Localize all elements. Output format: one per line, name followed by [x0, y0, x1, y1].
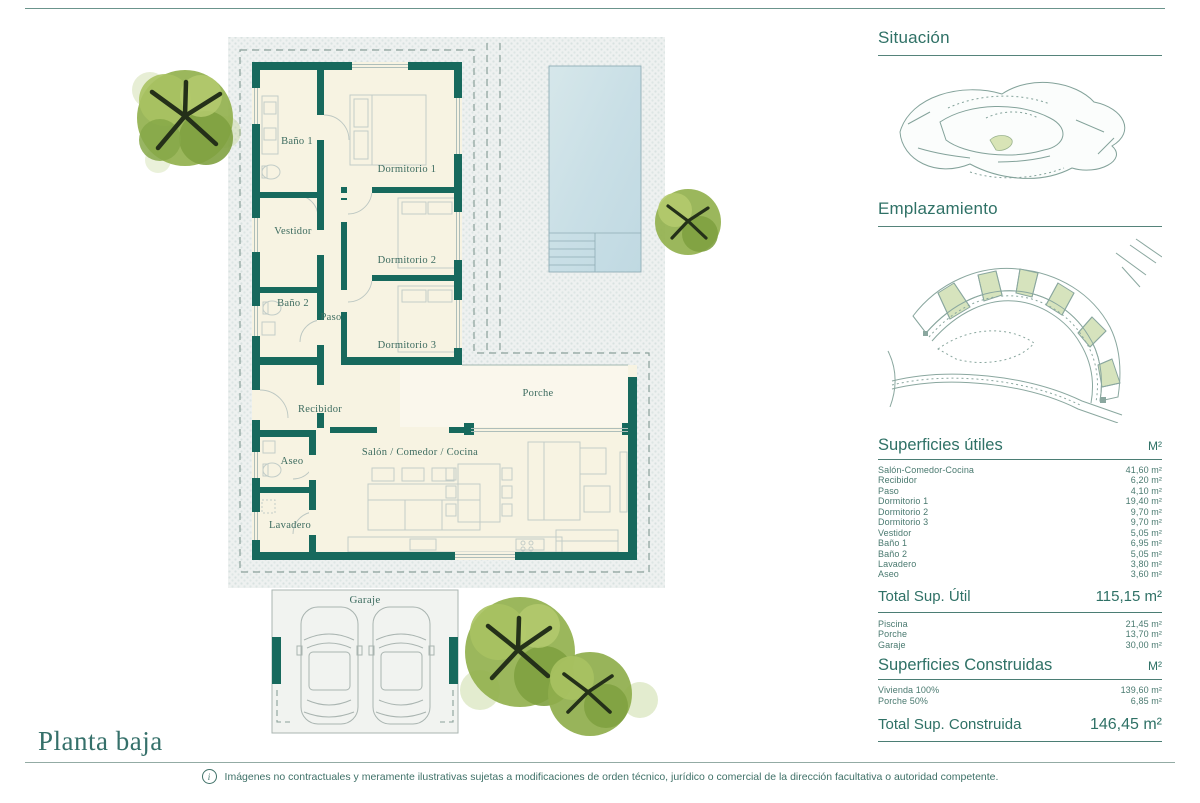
pool	[549, 66, 641, 272]
label-porche: Porche	[523, 388, 554, 399]
footer-divider	[25, 762, 1175, 763]
tree	[132, 70, 241, 173]
emplazamiento-title: Emplazamiento	[878, 199, 1162, 227]
label-garaje: Garaje	[349, 594, 380, 606]
table-row: Dormitorio 29,70 m²	[878, 507, 1162, 517]
table-row: Aseo3,60 m²	[878, 569, 1162, 579]
label-bano1: Baño 1	[281, 136, 313, 147]
disclaimer-text: Imágenes no contractuales y meramente il…	[225, 771, 999, 783]
label-recibidor: Recibidor	[298, 404, 342, 415]
label-dormitorio1: Dormitorio 1	[378, 164, 437, 175]
info-icon: i	[202, 769, 217, 784]
table-row: Baño 16,95 m²	[878, 538, 1162, 548]
table-row: Dormitorio 39,70 m²	[878, 517, 1162, 527]
label-lavadero: Lavadero	[269, 520, 311, 531]
table-row: Porche 50%6,85 m²	[878, 696, 1162, 706]
label-salon: Salón / Comedor / Cocina	[362, 447, 478, 458]
label-aseo: Aseo	[281, 456, 304, 467]
construidas-unit-header: M²	[1148, 659, 1162, 673]
top-divider	[25, 8, 1165, 9]
table-row: Salón-Comedor-Cocina41,60 m²	[878, 465, 1162, 475]
table-row: Vivienda 100%139,60 m²	[878, 685, 1162, 695]
table-row: Vestidor5,05 m²	[878, 528, 1162, 538]
table-row: Porche13,70 m²	[878, 629, 1162, 639]
construidas-title: Superficies Construidas	[878, 656, 1052, 675]
superficies-exteriores: Piscina21,45 m² Porche13,70 m² Garaje30,…	[878, 619, 1162, 650]
table-row: Garaje30,00 m²	[878, 640, 1162, 650]
utiles-title: Superficies útiles	[878, 436, 1003, 455]
situacion-map	[878, 60, 1162, 197]
label-bano2: Baño 2	[277, 298, 309, 309]
table-row: Recibidor6,20 m²	[878, 475, 1162, 485]
table-row: Paso4,10 m²	[878, 486, 1162, 496]
utiles-unit-header: M²	[1148, 439, 1162, 453]
side-panel: Situación Emplazamiento	[878, 28, 1162, 748]
label-dormitorio2: Dormitorio 2	[378, 255, 437, 266]
tree	[655, 189, 721, 255]
situacion-title: Situación	[878, 28, 1162, 56]
superficies-construidas-table: Superficies Construidas M² Vivienda 100%…	[878, 656, 1162, 742]
garage: Garaje	[272, 590, 458, 733]
disclaimer: i Imágenes no contractuales y meramente …	[0, 769, 1200, 784]
total-sup-util: Total Sup. Útil115,15 m²	[878, 584, 1162, 613]
tree-cluster	[460, 597, 658, 736]
table-row: Dormitorio 119,40 m²	[878, 496, 1162, 506]
table-row: Lavadero3,80 m²	[878, 559, 1162, 569]
emplazamiento-map	[878, 231, 1162, 428]
label-paso: Paso	[320, 312, 341, 323]
superficies-utiles-table: Superficies útiles M² Salón-Comedor-Coci…	[878, 436, 1162, 613]
label-dormitorio3: Dormitorio 3	[378, 340, 437, 351]
table-row: Piscina21,45 m²	[878, 619, 1162, 629]
page-title: Planta baja	[38, 726, 163, 757]
label-vestidor: Vestidor	[274, 226, 312, 237]
total-sup-construida: Total Sup. Construida146,45 m²	[878, 712, 1162, 742]
table-row: Baño 25,05 m²	[878, 549, 1162, 559]
